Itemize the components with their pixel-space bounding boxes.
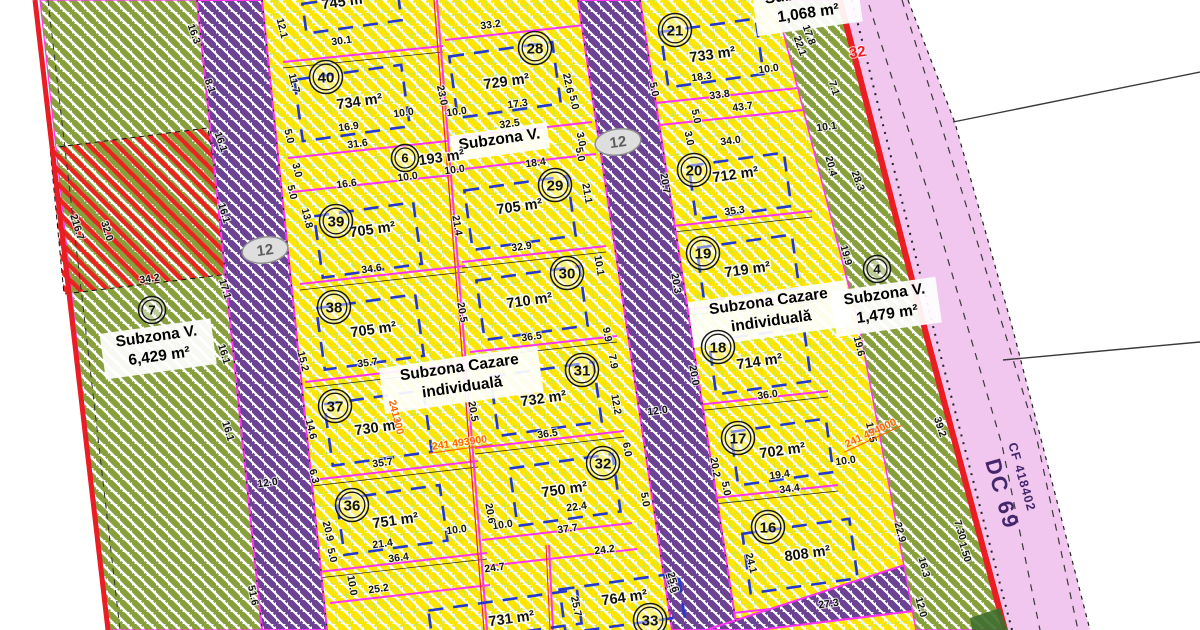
parcel-number: 39 bbox=[328, 214, 345, 231]
dimension-label: 6.0 bbox=[620, 441, 634, 458]
map-canvas: Subzona V.6,429 m²Subzona V.Subzona Caza… bbox=[0, 0, 1200, 630]
parcel-number: 16 bbox=[760, 520, 777, 537]
parcel-number-circle: 36 bbox=[336, 489, 369, 522]
parcel-number: 29 bbox=[547, 178, 564, 195]
parcel-number-circle: 19 bbox=[687, 237, 720, 270]
parcel-number-circle: 21 bbox=[659, 14, 692, 47]
parcel-number: 20 bbox=[686, 163, 703, 180]
parcel-number: 37 bbox=[327, 399, 344, 416]
parcel-number-circle: 7 bbox=[139, 297, 166, 324]
parcel-number-circle: 30 bbox=[551, 257, 584, 290]
parcel-number-circle: 31 bbox=[566, 354, 599, 387]
parcel-number: 30 bbox=[559, 266, 576, 283]
parcel-number-circle: 38 bbox=[318, 291, 351, 324]
parcel-number: 36 bbox=[344, 498, 361, 515]
parcel-number: 33 bbox=[642, 613, 659, 630]
parcel-number: 28 bbox=[527, 41, 544, 58]
parcel-number-circle: 20 bbox=[678, 154, 711, 187]
parcel-number: 7 bbox=[148, 303, 155, 318]
parcel-number: 38 bbox=[326, 300, 343, 317]
parcel-number-circle: 37 bbox=[319, 390, 352, 423]
parcel-number-circle: 39 bbox=[320, 205, 353, 238]
cadastral-map: Subzona V.6,429 m²Subzona V.Subzona Caza… bbox=[0, 0, 1200, 630]
parcel-number: 18 bbox=[710, 340, 727, 357]
parcel-number-circle: 4 bbox=[864, 256, 891, 283]
dimension-label: 9.9 bbox=[600, 326, 614, 343]
parcel-number-circle: 32 bbox=[587, 447, 620, 480]
parcel-number: 40 bbox=[318, 70, 335, 87]
parcel-number-circle: 33 bbox=[634, 604, 667, 630]
parcel-number-circle: 16 bbox=[752, 511, 785, 544]
parcel-number: 4 bbox=[873, 262, 881, 277]
parcel-number-circle: 28 bbox=[519, 32, 552, 65]
parcel-number: 17 bbox=[730, 431, 747, 448]
parcel-number: 6 bbox=[401, 151, 408, 166]
parcel-number-circle: 17 bbox=[722, 422, 755, 455]
road-marker-32: 32 bbox=[848, 43, 867, 62]
parcel-number-circle: 40 bbox=[310, 61, 343, 94]
parcel-number: 32 bbox=[595, 456, 612, 473]
parcel-number-circle: 18 bbox=[702, 331, 735, 364]
dimension-label: 5.0 bbox=[638, 491, 652, 508]
dimension-label: 5.0 bbox=[719, 480, 733, 497]
parcel-number: 21 bbox=[667, 23, 684, 40]
road-node-label: 12 bbox=[609, 133, 628, 152]
red-hatch-area bbox=[50, 128, 230, 294]
parcel-number-circle: 6 bbox=[392, 145, 419, 172]
parcel-number: 31 bbox=[574, 363, 591, 380]
parcel-number-circle: 29 bbox=[539, 169, 572, 202]
dimension-label: 7.9 bbox=[606, 353, 620, 370]
parcel-number: 19 bbox=[695, 246, 712, 263]
road-node-label: 12 bbox=[256, 241, 275, 260]
